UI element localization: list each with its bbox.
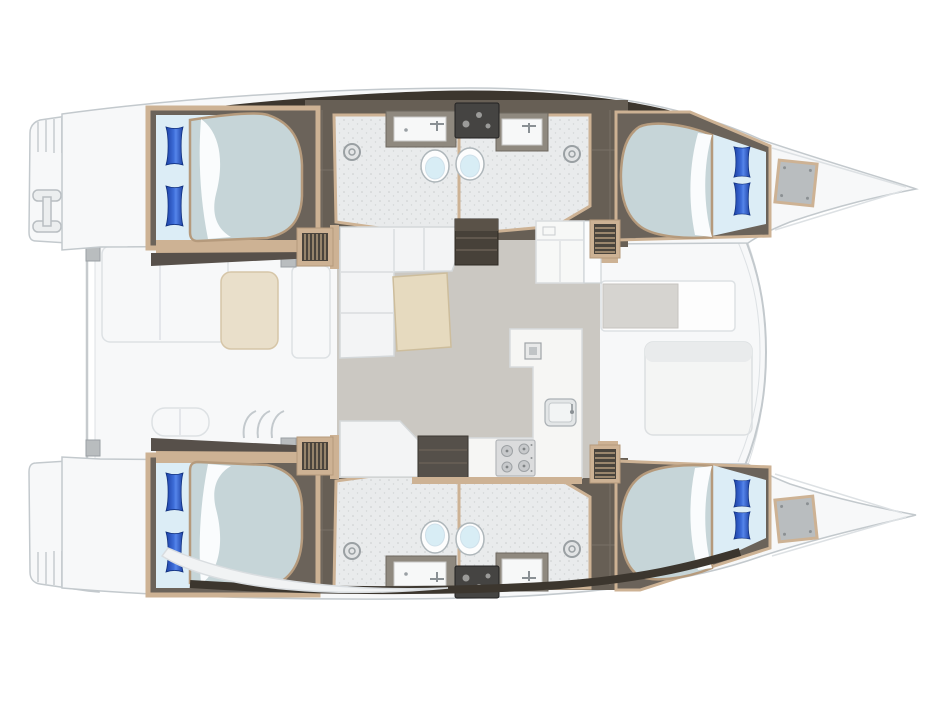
companionway-steps	[590, 220, 620, 258]
foredeck-lounge-pad	[603, 284, 678, 328]
galley-sink	[545, 399, 576, 426]
toilet-icon	[421, 150, 449, 182]
bow-anchor-locker	[775, 496, 817, 542]
shower-drain-icon	[564, 146, 580, 162]
cockpit-bench-cushion	[221, 272, 278, 349]
pillow-icon	[734, 147, 750, 177]
starboard-forward-cabin	[616, 461, 770, 590]
sun-pad-bolster	[645, 342, 752, 362]
floorplan-svg	[0, 0, 940, 705]
toilet-icon	[421, 521, 449, 553]
stove-icon	[496, 440, 535, 476]
shower-drain-icon	[344, 543, 360, 559]
bed-foot-shelf	[156, 240, 310, 253]
toilet-icon	[456, 523, 484, 555]
forward-counter	[536, 221, 584, 283]
pillow-icon	[734, 480, 750, 507]
companionway-steps	[297, 228, 333, 266]
vanity-sink	[386, 111, 456, 147]
pillow-icon	[734, 183, 750, 215]
salon	[330, 219, 618, 484]
companionway-steps	[297, 437, 333, 475]
pillow-icon	[734, 512, 750, 539]
port-aft-cabin	[148, 108, 318, 253]
galley-steps-well	[418, 436, 468, 478]
salon-bench-seat	[340, 421, 418, 477]
pillow-icon	[166, 127, 183, 165]
bed-foot-shelf	[156, 450, 310, 463]
starboard-head	[334, 464, 590, 598]
companionway-steps	[590, 445, 620, 483]
bow-anchor-locker	[775, 160, 817, 206]
salon-table	[393, 273, 451, 351]
shower-drain-icon	[344, 144, 360, 160]
pillow-icon	[166, 186, 183, 226]
deck-hatch	[86, 440, 100, 456]
galley-base-trim	[412, 477, 582, 484]
catamaran-floorplan	[0, 0, 940, 705]
port-forward-cabin	[616, 112, 770, 240]
shower-drain-icon	[564, 541, 580, 557]
vanity-sink	[496, 113, 548, 151]
toilet-icon	[456, 148, 484, 180]
salon-entry-steps	[455, 219, 498, 265]
pillow-icon	[166, 473, 183, 511]
cockpit-side-panel	[292, 266, 330, 358]
switch-inner	[529, 347, 537, 355]
appliance-unit	[455, 103, 499, 138]
